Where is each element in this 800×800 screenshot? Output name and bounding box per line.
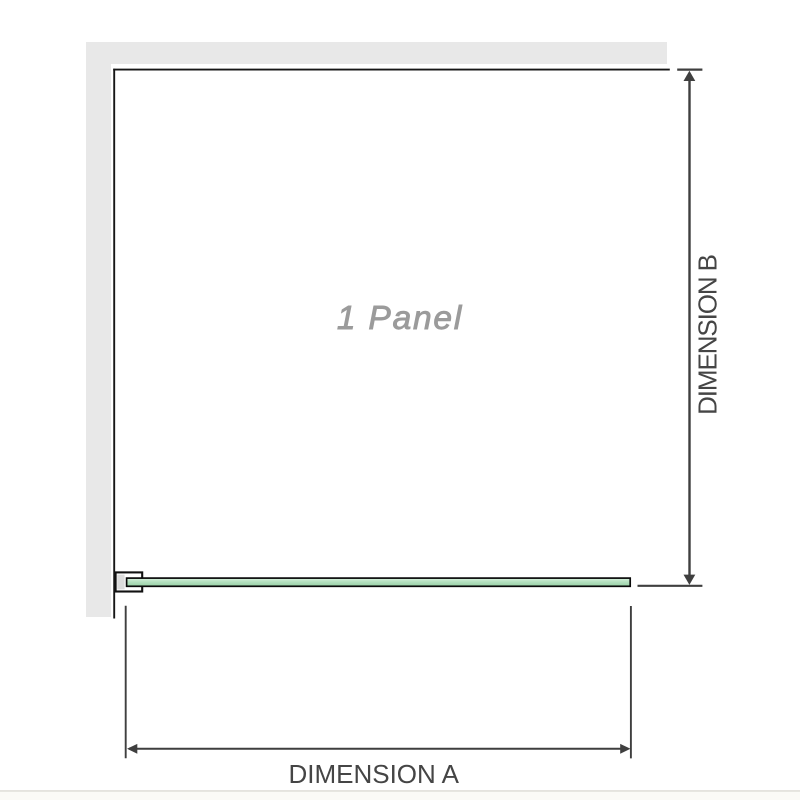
svg-text:DIMENSION A: DIMENSION A bbox=[288, 759, 459, 789]
svg-text:DIMENSION B: DIMENSION B bbox=[692, 255, 722, 415]
svg-text:1 Panel: 1 Panel bbox=[337, 300, 463, 337]
